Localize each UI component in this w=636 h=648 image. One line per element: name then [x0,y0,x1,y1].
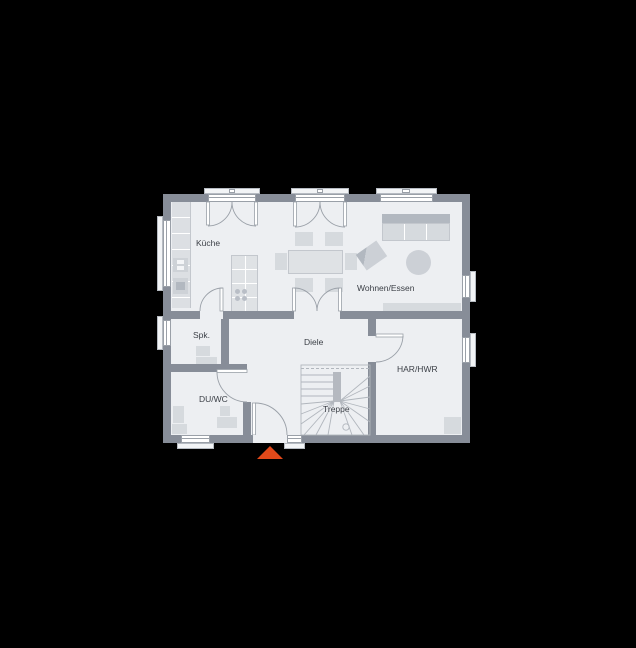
french-door-leaf [294,202,297,226]
window-utility-right [462,337,470,363]
window-dining-top [295,194,345,202]
door-arc [320,202,345,227]
canvas: { "scene": { "background": "#000000" }, … [0,0,636,648]
door-arc [255,403,287,435]
window-sill [470,271,476,302]
french-door-leaf [255,202,258,225]
double-door-leaf [293,288,296,311]
window-pantry-left [163,320,171,346]
door-arc [376,336,403,362]
door-arc [294,288,317,311]
door-arc [317,288,340,311]
window-bath-bottom [181,435,210,443]
room-label-spk: Spk. [193,330,210,340]
floor-plan: Küche Spk. DU/WC Diele Treppe Wohnen/Ess… [163,194,470,443]
room-label-treppe: Treppe [323,404,350,414]
stair-walkline-start [343,424,349,430]
window-kitchen-left [163,220,171,287]
window-living-right [462,275,470,298]
window-sill [284,443,305,449]
room-label-duwc: DU/WC [199,394,228,404]
door-swings [200,202,403,435]
entrance-door-leaf [253,403,256,435]
french-door-leaf [207,202,210,225]
entrance-door-opening [253,435,287,443]
window-sill [470,333,476,367]
room-label-kueche: Küche [196,238,220,248]
window-sill [177,443,214,449]
window-vent [402,189,410,193]
room-label-diele: Diele [304,337,323,347]
utility-door-leaf [376,334,403,337]
window-kitchen-top [208,194,256,202]
plan-linework [163,194,470,443]
door-arc [232,202,256,226]
double-door-leaf [339,288,342,311]
door-handle [229,189,235,193]
french-door-leaf [344,202,347,226]
pantry-door-leaf [220,288,223,311]
room-label-har-hwr: HAR/HWR [397,364,438,374]
stair-divider [333,372,341,402]
door-arc [208,202,232,226]
room-label-wohnen-essen: Wohnen/Essen [357,283,415,293]
entrance-arrow-icon [257,446,283,459]
window-entry-sidelight [287,435,302,443]
bath-door-leaf [217,370,247,373]
window-living-top [380,194,433,202]
door-arc [295,202,320,227]
door-arc [200,288,223,311]
staircase [301,365,370,435]
window-sill [157,316,163,350]
door-handle [317,189,323,193]
window-sill [157,216,163,291]
